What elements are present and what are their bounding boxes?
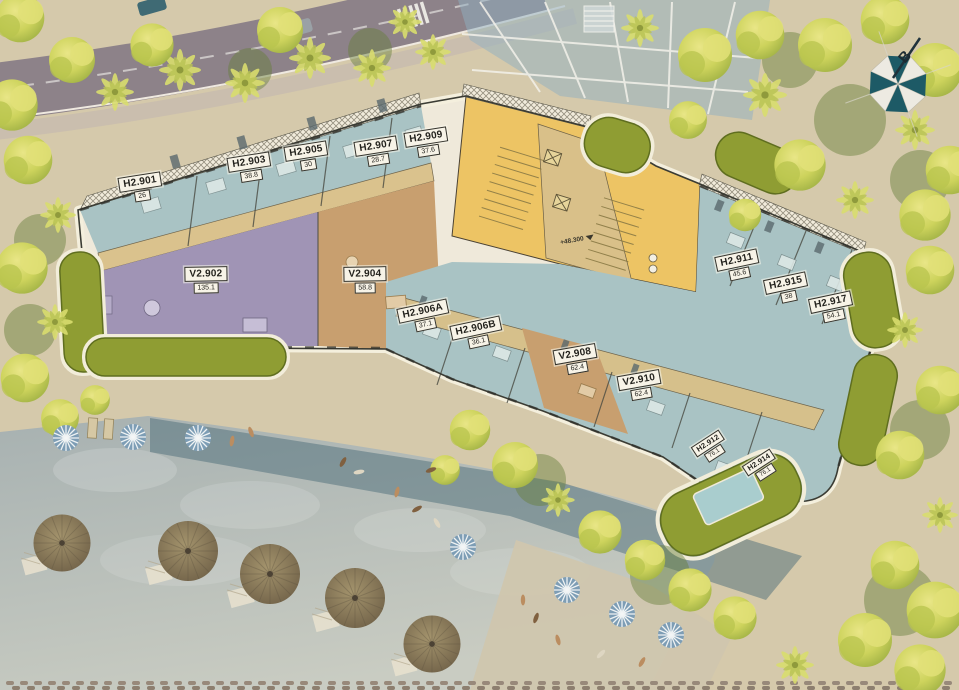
- unit-label-v2902[interactable]: V2.902 135.1: [184, 266, 227, 294]
- unit-id: V2.902: [184, 266, 227, 282]
- unit-area: 58.8: [354, 282, 376, 293]
- unit-label-v2904[interactable]: V2.904 58.8: [343, 266, 386, 294]
- pergola-stair: [584, 6, 614, 32]
- sunbed: [103, 419, 113, 440]
- unit-id: V2.904: [343, 266, 386, 282]
- siteplan-canvas: H2.901 26 H2.903 38.8 H2.905 30 H2.907 2…: [0, 0, 959, 690]
- unit-area: 135.1: [193, 282, 219, 293]
- sunbed: [87, 418, 97, 439]
- elevation-triangle-icon: [585, 235, 594, 241]
